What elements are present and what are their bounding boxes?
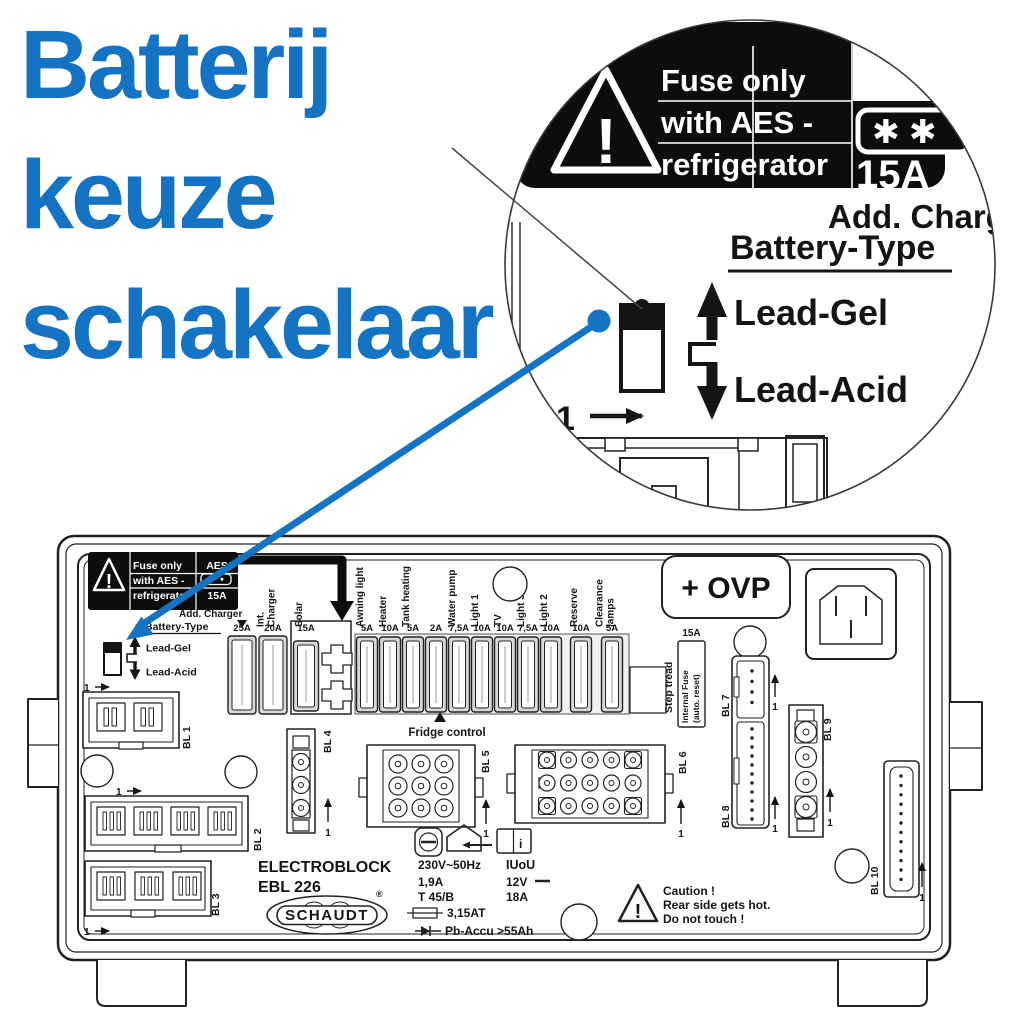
spec-fuse-rating: 3,15AT: [447, 906, 486, 920]
model-number: EBL 226: [258, 879, 321, 896]
annotation-line-3: schakelaar: [20, 260, 492, 390]
fuse-slot-1[interactable]: 25A: [228, 623, 256, 714]
foot-left: [97, 960, 186, 1006]
inset-fuse-stars: ✱ ✱: [872, 113, 936, 150]
inset-label-line-2: with AES -: [660, 105, 813, 140]
callout-dot: [588, 310, 611, 333]
bl7-label: BL 7: [720, 694, 732, 717]
add-charger-label: Add. Charger: [179, 609, 242, 620]
bl4-pin1: 1: [325, 828, 331, 839]
inset-lead-acid: Lead-Acid: [734, 369, 908, 410]
caution-line-1: Caution !: [663, 884, 715, 898]
fuse-holder-icon: [415, 828, 442, 856]
lead-gel-label: Lead-Gel: [146, 643, 191, 655]
bl2-label: BL 2: [252, 828, 264, 851]
bl1-pin1: 1: [84, 683, 90, 694]
exclamation-icon: !: [106, 571, 113, 593]
product-name: ELECTROBLOCK: [258, 859, 392, 876]
bl5-pin1: 1: [483, 829, 489, 840]
fuse-name-14: Clearance: [595, 579, 606, 627]
label-line-1: Fuse only: [133, 560, 182, 572]
annotation-line-1: Batterij: [20, 0, 492, 130]
bl8-pin1: 1: [772, 824, 778, 835]
fuse-name-2: Charger: [267, 589, 278, 627]
spec-charge-curve: IUoU: [506, 858, 535, 872]
brand-name: SCHAUDT: [285, 907, 369, 924]
inset-fuse-rating: 15A: [856, 153, 929, 197]
annotation-title: Batterij keuze schakelaar: [20, 0, 492, 390]
annotation-line-2: keuze: [20, 130, 492, 260]
magnifier-inset: ! Fuse only with AES - refrigerator ✱ ✱ …: [452, 18, 1024, 573]
fuse-name-3: Solar: [294, 602, 305, 627]
board-warning-label: ! Fuse only with AES - refrigerator AES …: [88, 552, 238, 610]
connector-bl1[interactable]: [83, 692, 179, 749]
inset-battery-switch[interactable]: [621, 299, 663, 391]
bl9-pin1: 1: [827, 818, 833, 829]
internal-fuse-rating: 15A: [682, 628, 700, 639]
fuse-amp-1: 25A: [233, 623, 251, 634]
lead-acid-label: Lead-Acid: [146, 667, 197, 679]
spec-dc-voltage: 12V: [506, 875, 527, 889]
inset-lead-gel: Lead-Gel: [734, 292, 888, 333]
bl4-label: BL 4: [322, 730, 334, 753]
caution-exclamation-icon: !: [635, 901, 642, 923]
registered-mark: ®: [376, 889, 383, 899]
bl3-pin1: 1: [84, 927, 90, 938]
label-line-2: with AES -: [132, 575, 185, 587]
battery-type-switch[interactable]: [104, 643, 121, 675]
step-tread-label: Step tread: [663, 662, 675, 713]
spec-dc-current: 18A: [506, 890, 528, 904]
internal-fuse-line-2: (auto. reset): [691, 674, 701, 723]
internal-fuse-line-1: Internal Fuse: [680, 670, 690, 723]
spec-current: 1,9A: [418, 875, 444, 889]
connector-bl2[interactable]: [85, 796, 248, 852]
fuse-name-12: Light 2: [539, 594, 550, 627]
bl9-label: BL 9: [822, 718, 834, 741]
bl10-label: BL 10: [869, 866, 881, 895]
spec-voltage: 230V~50Hz: [418, 858, 481, 872]
page: Batterij keuze schakelaar: [0, 0, 1024, 1024]
bl6-pin1: 1: [678, 829, 684, 840]
inset-label-line-1: Fuse only: [661, 63, 806, 98]
label-rating: 15A: [207, 590, 227, 602]
mount-tab-right: [950, 702, 982, 790]
fuse-name-13: Reserve: [569, 588, 580, 627]
connector-bl10[interactable]: [884, 761, 919, 897]
bl8-label: BL 8: [720, 805, 732, 828]
book-i-symbol: i: [519, 837, 522, 851]
bl7-pin1: 1: [772, 702, 778, 713]
fuse-name-10: TV: [493, 614, 504, 627]
bl10-pin1: 1: [919, 893, 925, 904]
caution-line-2: Rear side gets hot.: [663, 898, 770, 912]
spec-type: T 45/B: [418, 890, 454, 904]
bl6-label: BL 6: [677, 751, 689, 774]
bl2-pin1: 1: [116, 787, 122, 798]
fuse-slot-10[interactable]: 10ATV: [493, 614, 516, 712]
fuse-name-2: Int.: [256, 612, 267, 627]
fuse-symbol-icon: [407, 908, 443, 918]
mount-tab-left: [28, 699, 58, 787]
fuse-name-5: Heater: [378, 596, 389, 627]
bl1-label: BL 1: [181, 726, 193, 749]
fuse-amp-7: 2A: [430, 623, 442, 634]
fridge-control-label: Fridge control: [408, 727, 485, 739]
spec-battery: Pb-Accu >55Ah: [445, 924, 533, 938]
foot-right: [838, 960, 927, 1006]
bl3-label: BL 3: [210, 893, 222, 916]
fuse-name-9: Light 1: [470, 594, 481, 627]
fuse-slot-7[interactable]: 2A: [426, 623, 447, 712]
inset-exclamation-icon: !: [595, 105, 616, 177]
fuse-name-14: lamps: [606, 598, 617, 627]
inset-label-line-3: refrigerator: [661, 147, 828, 182]
fuse-name-8: Water pump: [447, 570, 458, 627]
manual-book-icon: i: [497, 829, 531, 853]
battery-type-label: Battery-Type: [145, 621, 209, 633]
step-tread-platform: [630, 667, 666, 713]
inset-battery-type: Battery-Type: [730, 229, 935, 267]
ovp-label: + OVP: [681, 572, 770, 605]
bl5-label: BL 5: [480, 750, 492, 773]
fuse-name-4: Awning light: [355, 567, 366, 627]
caution-line-3: Do not touch !: [663, 912, 744, 926]
ac-power-inlet[interactable]: [806, 569, 896, 659]
fuse-name-6: Tank heating: [401, 566, 412, 627]
